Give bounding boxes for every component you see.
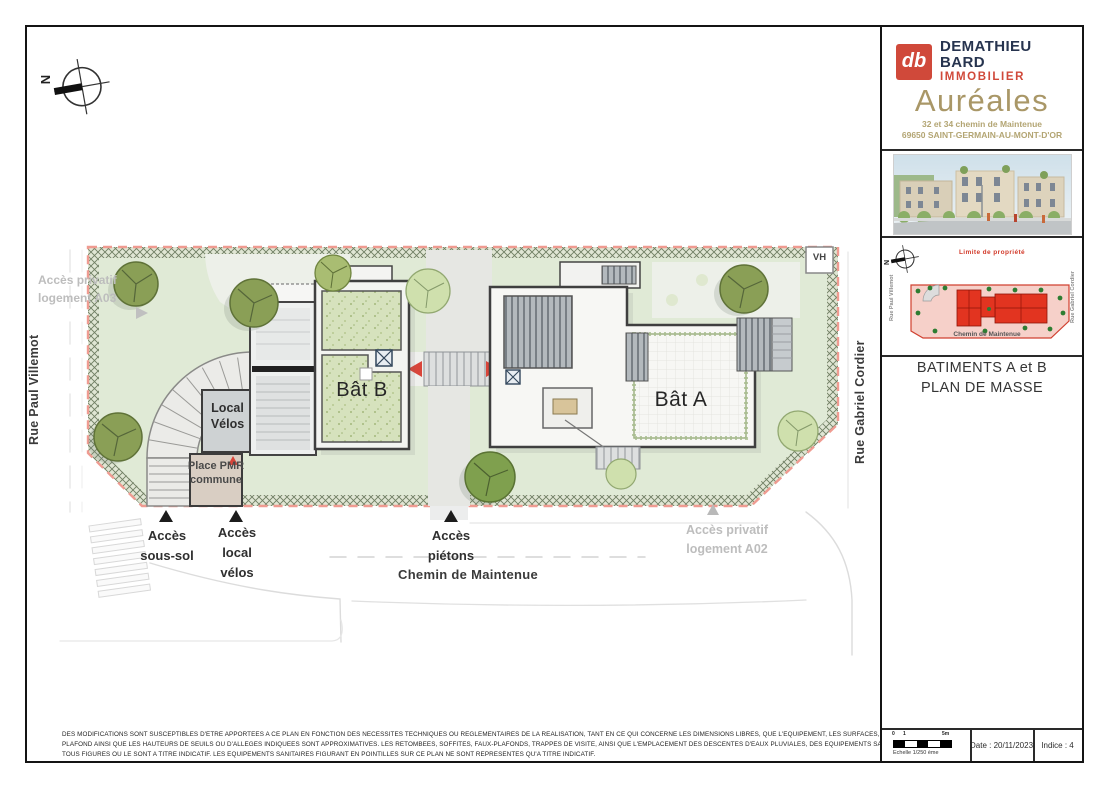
street-label-rue-paul-villemot: Rue Paul Villemot: [27, 330, 41, 450]
brand-block: db DEMATHIEU BARD IMMOBILIER: [896, 39, 1032, 84]
brand-line-1: DEMATHIEU: [940, 39, 1032, 55]
keymap-limit-label: Limite de propriété: [922, 249, 1062, 256]
scale-caption: Echelle 1/250 ème: [893, 750, 939, 756]
acces-sous-sol-arrow-icon: [159, 510, 173, 522]
acces-privatif-a03-label: Accès privatif logement A03: [38, 271, 117, 307]
patio-table: [553, 399, 577, 414]
skylight-icon: [506, 370, 520, 384]
brand-line-2: BARD: [940, 55, 1032, 71]
bat-b-label: Bât B: [322, 379, 402, 402]
project-name: Auréales: [882, 83, 1082, 119]
acces-local-velos-arrow-icon: [229, 510, 243, 522]
street-label-rue-gabriel-cordier: Rue Gabriel Cordier: [853, 340, 867, 465]
keymap-street-left: Rue Paul Villemot: [889, 267, 895, 329]
demathieu-bard-logo-icon: db: [896, 44, 932, 80]
disclaimer-line-1: DES MODIFICATIONS SONT SUSCEPTIBLES D'ET…: [62, 730, 878, 740]
skylight-icon: [376, 350, 392, 366]
sheet-title: BATIMENTS A et B PLAN DE MASSE: [882, 359, 1082, 398]
indice-field: Indice : 4: [1033, 741, 1082, 750]
sheet-title-line-1: BATIMENTS A et B: [882, 359, 1082, 379]
bat-a-ribbed-roof: [504, 296, 572, 368]
disclaimer-line-2: PLAFOND AINSI QUE LES HAUTEURS DE SEUILS…: [62, 740, 878, 750]
project-render-photo: [894, 155, 1071, 234]
north-label: N: [38, 75, 53, 84]
acces-sous-sol-label: Accès sous-sol: [127, 526, 207, 566]
vh-label: VH: [806, 252, 833, 263]
acces-local-velos-label: Accès local vélos: [205, 523, 269, 583]
bat-b-green-roof-north: [322, 291, 401, 350]
scale-tick-0: 0: [892, 731, 895, 737]
local-velos-label: Local Vélos: [200, 400, 255, 433]
bat-b-building: [315, 266, 415, 455]
acces-pietons-label: Accès piétons: [413, 526, 489, 566]
bat-a-terrace: [634, 334, 746, 438]
project-address-1: 32 et 34 chemin de Maintenue: [882, 119, 1082, 129]
disclaimer-line-3: TOUS FIGURES OU LE SONT A TITRE INDICATI…: [62, 750, 878, 760]
keymap-street-right: Rue Gabriel Cordier: [1070, 265, 1076, 329]
project-address-2: 69650 SAINT-GERMAIN-AU-MONT-D'OR: [882, 130, 1082, 140]
date-field: Date : 20/11/2023: [970, 741, 1033, 750]
title-block-panel: db DEMATHIEU BARD IMMOBILIER Auréales 32…: [882, 27, 1082, 760]
tree: [606, 459, 636, 489]
street-label-chemin-de-maintenue: Chemin de Maintenue: [398, 567, 538, 582]
scale-tick-1: 1: [903, 731, 906, 737]
acces-privatif-a02-label: Accès privatif logement A02: [672, 521, 782, 560]
place-pmr-label: Place PMR commune: [185, 459, 247, 488]
scale-bar: [893, 740, 952, 748]
exterior-stairs: [424, 352, 492, 386]
tree: [406, 269, 450, 313]
keymap-north-label: N: [884, 260, 891, 265]
tree: [315, 255, 351, 291]
keymap-street-bottom: Chemin de Maintenue: [922, 331, 1052, 338]
tree: [778, 411, 818, 451]
north-arrow-icon: N: [44, 54, 114, 120]
bat-a-label: Bât A: [638, 388, 724, 412]
sheet-title-line-2: PLAN DE MASSE: [882, 379, 1082, 399]
scale-tick-5m: 5m: [942, 731, 949, 737]
disclaimer-notes: DES MODIFICATIONS SONT SUSCEPTIBLES D'ET…: [62, 730, 878, 761]
logo-glyph: db: [902, 50, 926, 73]
